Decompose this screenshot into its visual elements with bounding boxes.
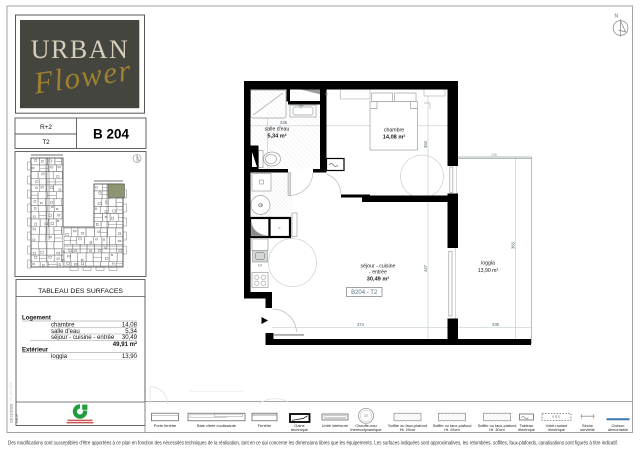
svg-text:PL: PL (325, 92, 329, 96)
svg-text:Ht. 25cm: Ht. 25cm (444, 427, 460, 432)
svg-text:loggia: loggia (481, 261, 495, 267)
svg-text:VRE: VRE (552, 415, 561, 419)
svg-text:CE: CE (258, 204, 263, 208)
svg-text:447: 447 (423, 264, 428, 272)
svg-text:Baie vitrée coulissante: Baie vitrée coulissante (197, 423, 236, 428)
svg-text:R+2: R+2 (40, 124, 52, 131)
svg-text:5,34 m²: 5,34 m² (267, 133, 286, 140)
svg-text:B 204: B 204 (93, 127, 130, 142)
svg-text:23. juin XXX: 23. juin XXX (9, 382, 13, 401)
svg-text:N: N (615, 14, 619, 20)
svg-text:salle d'eau: salle d'eau (265, 127, 290, 133)
svg-text:Fenêtre: Fenêtre (258, 423, 271, 428)
svg-text:électrique: électrique (548, 427, 565, 432)
svg-text:Ht. 20cm: Ht. 20cm (400, 427, 416, 432)
svg-text:236: 236 (280, 120, 288, 125)
svg-text:électrique: électrique (518, 427, 535, 432)
svg-text:236: 236 (491, 153, 497, 157)
svg-text:- entrée: - entrée (369, 270, 387, 276)
svg-text:Porte fenêtre: Porte fenêtre (154, 423, 177, 428)
svg-text:360: 360 (510, 241, 515, 249)
svg-text:TABLEAU DES SURFACES: TABLEAU DES SURFACES (38, 288, 123, 295)
svg-text:CE: CE (364, 414, 368, 418)
svg-text:23/12/2020: 23/12/2020 (10, 404, 14, 423)
svg-text:B204 - T2: B204 - T2 (351, 290, 378, 296)
svg-text:LV: LV (258, 264, 263, 268)
svg-text:démontable: démontable (608, 427, 628, 432)
svg-text:Des modifications sont suscept: Des modifications sont susceptibles d'êt… (8, 441, 618, 447)
svg-text:360: 360 (423, 140, 428, 148)
svg-text:technique: technique (291, 427, 308, 432)
svg-text:374: 374 (357, 322, 365, 327)
svg-text:T2: T2 (42, 139, 50, 146)
svg-text:14,08 m²: 14,08 m² (383, 134, 406, 141)
svg-text:Unité intérieure: Unité intérieure (322, 423, 348, 428)
svg-text:chambre: chambre (384, 128, 404, 134)
svg-text:Logement: Logement (22, 316, 51, 322)
svg-text:49,91 m²: 49,91 m² (113, 341, 137, 348)
svg-text:Ht. 30cm: Ht. 30cm (489, 427, 505, 432)
svg-text:13,90 m²: 13,90 m² (478, 268, 499, 274)
svg-text:thermodynamique: thermodynamique (350, 427, 381, 432)
svg-text:Ind. A: Ind. A (15, 414, 19, 423)
svg-text:30,49 m²: 30,49 m² (367, 276, 390, 283)
svg-text:serviette: serviette (580, 427, 595, 432)
svg-text:236: 236 (492, 322, 500, 327)
